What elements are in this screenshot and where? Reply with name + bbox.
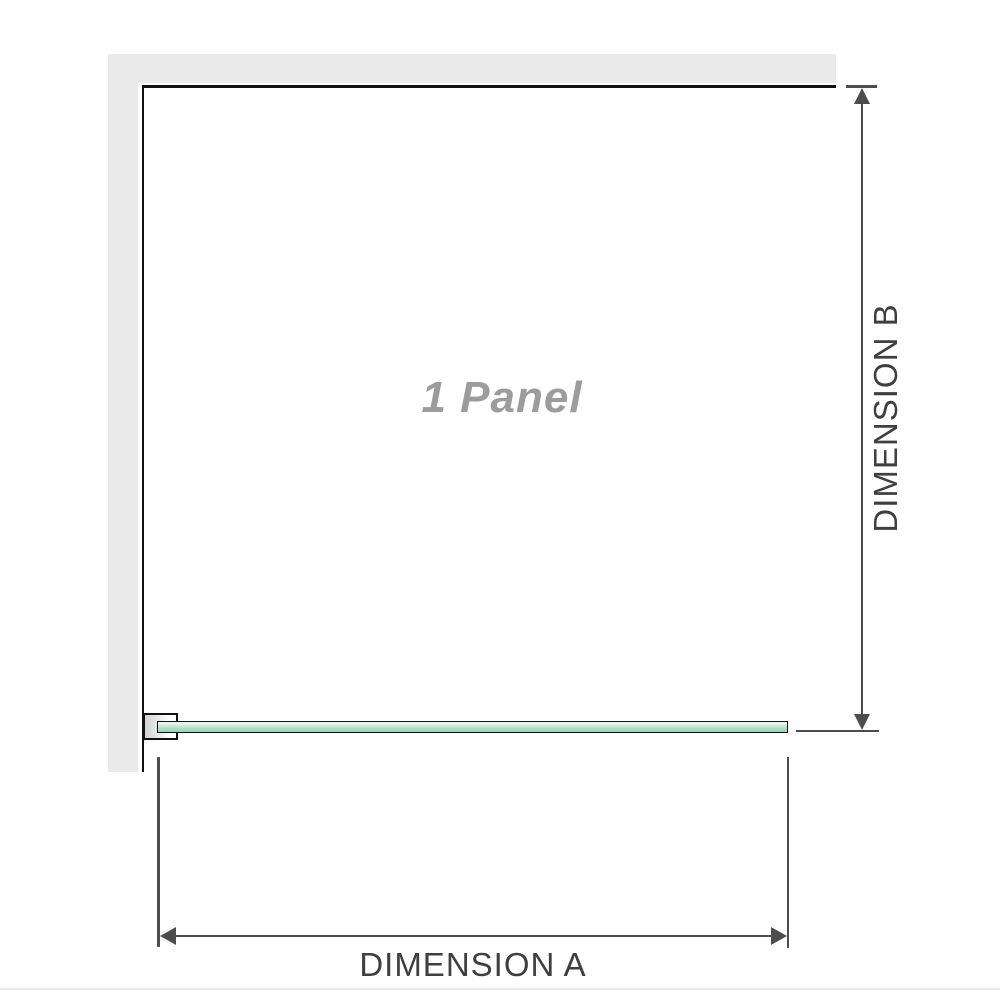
panel-outline-left — [142, 85, 145, 772]
dimension-a-left-extension — [157, 757, 160, 948]
wall-top-bar — [108, 54, 836, 83]
dimension-b-label: DIMENSION B — [867, 303, 905, 532]
arrow-up-icon — [854, 88, 870, 104]
dimension-a-label: DIMENSION A — [158, 946, 788, 984]
dimension-b-line — [861, 95, 864, 722]
wall-left-bar — [108, 54, 138, 772]
dimension-a-right-extension — [787, 757, 790, 949]
arrow-left-icon — [160, 927, 176, 945]
arrow-down-icon — [854, 714, 870, 730]
panel-outline-top — [142, 85, 837, 88]
arrow-right-icon — [771, 927, 787, 945]
footer-divider — [0, 988, 1000, 990]
dimension-b-bottom-tick — [796, 730, 879, 733]
dimension-a-line — [162, 935, 785, 938]
panel-count-watermark: 1 Panel — [421, 373, 582, 423]
shower-panel-dimension-diagram: 1 Panel DIMENSION B DIMENSION A — [0, 0, 1000, 1000]
glass-panel — [157, 721, 788, 733]
